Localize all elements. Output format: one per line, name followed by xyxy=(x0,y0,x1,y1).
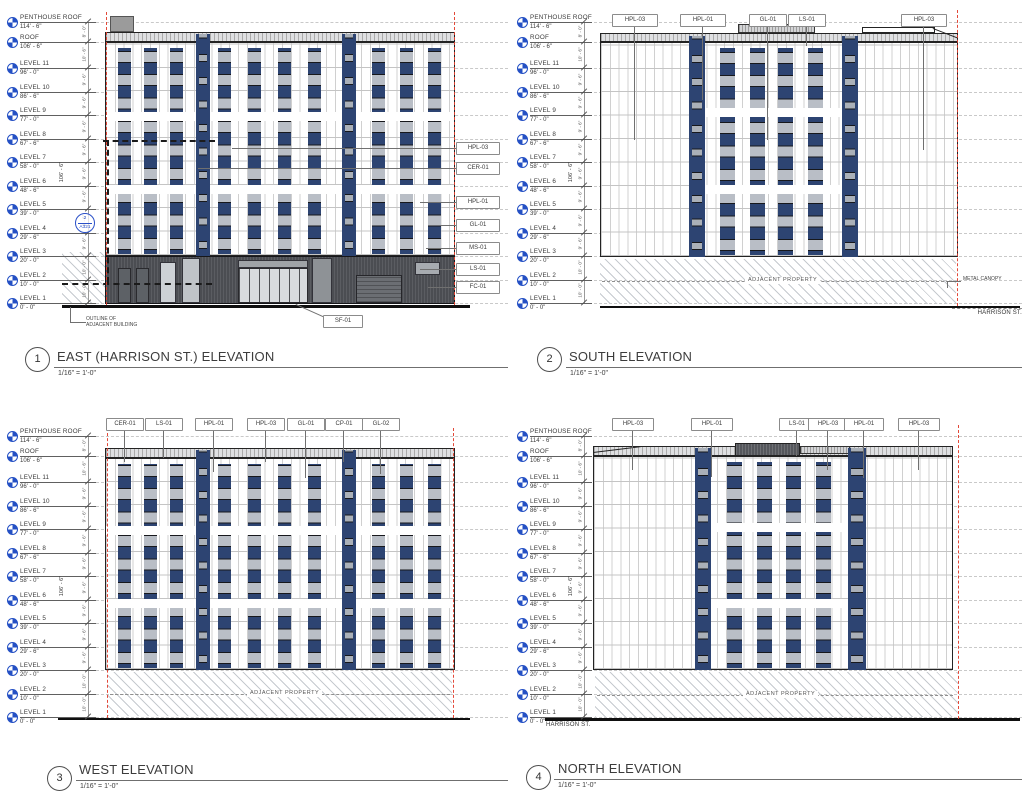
material-tag: HPL-03 xyxy=(612,14,658,27)
facade xyxy=(593,456,953,670)
property-line-red xyxy=(107,428,108,718)
property-label: ADJACENT PROPERTY xyxy=(743,691,818,698)
datum-icon xyxy=(7,618,18,629)
base-detail xyxy=(136,268,149,303)
datum-icon xyxy=(7,431,18,442)
material-tag: HPL-03 xyxy=(898,418,940,431)
window-column xyxy=(400,464,413,668)
window-column xyxy=(400,48,413,254)
window-column xyxy=(170,48,183,254)
datum-icon xyxy=(517,689,528,700)
window-column xyxy=(727,462,742,668)
floor-dimension: 9' - 6" xyxy=(82,234,87,254)
floor-dimension: 10' - 0" xyxy=(82,281,87,301)
facade-band xyxy=(106,112,454,121)
parapet-band xyxy=(600,33,958,42)
material-tag: HPL-01 xyxy=(844,418,884,431)
material-tag: GL-01 xyxy=(749,14,787,27)
floor-dimension: 9' - 6" xyxy=(578,577,583,597)
level-elevation: 58' - 0" xyxy=(530,577,592,585)
material-tag: HPL-01 xyxy=(456,196,500,209)
datum-icon xyxy=(517,712,528,723)
title-rule xyxy=(54,367,508,368)
floor-dimension: 10' - 0" xyxy=(82,257,87,277)
level-elevation: 20' - 0" xyxy=(530,671,592,679)
overall-dimension: 106' - 6" xyxy=(568,149,574,195)
floor-dimension: 9' - 6" xyxy=(82,483,87,503)
tag-leader xyxy=(232,148,456,149)
material-tag: HPL-01 xyxy=(680,14,726,27)
datum-icon xyxy=(517,477,528,488)
material-tag: LS-01 xyxy=(145,418,183,431)
datum-icon xyxy=(517,157,528,168)
floor-dimension: 8' - 0" xyxy=(578,436,583,456)
pier xyxy=(342,34,356,256)
outline-note: OUTLINE OF ADJACENT BUILDING xyxy=(86,316,176,328)
level-elevation: 58' - 0" xyxy=(530,163,592,171)
view-title: SOUTH ELEVATION xyxy=(569,349,692,364)
floor-dimension: 10' - 0" xyxy=(578,257,583,277)
datum-icon xyxy=(517,665,528,676)
floor-dimension: 9' - 6" xyxy=(578,483,583,503)
window-column xyxy=(278,464,291,668)
level-elevation: 77' - 0" xyxy=(530,530,592,538)
level-elevation: 96' - 0" xyxy=(530,69,592,77)
floor-dimension: 9' - 6" xyxy=(578,140,583,160)
datum-icon xyxy=(517,251,528,262)
tag-leader xyxy=(796,431,797,456)
level-elevation: 48' - 6" xyxy=(530,187,592,195)
level-elevation: 77' - 0" xyxy=(530,116,592,124)
level-elevation: 48' - 6" xyxy=(530,601,592,609)
parapet-band xyxy=(105,32,455,42)
window-column xyxy=(248,48,261,254)
view-scale: 1/16" = 1'-0" xyxy=(570,370,608,377)
window-column xyxy=(144,464,157,668)
floor-dimension: 9' - 6" xyxy=(578,210,583,230)
datum-icon xyxy=(7,204,18,215)
pier xyxy=(842,36,858,257)
property-label: ADJACENT PROPERTY xyxy=(745,277,820,284)
window-column xyxy=(118,48,131,254)
overall-dimension: 106' - 6" xyxy=(59,563,65,609)
datum-icon xyxy=(7,251,18,262)
tag-leader xyxy=(711,431,712,477)
tag-leader xyxy=(163,431,164,458)
floor-dimension: 9' - 6" xyxy=(578,163,583,183)
window-column xyxy=(778,48,793,255)
material-tag: LS-01 xyxy=(456,263,500,276)
window-column xyxy=(808,48,823,255)
pier xyxy=(848,448,866,670)
tag-leader xyxy=(124,431,125,462)
base-detail xyxy=(182,258,200,303)
datum-icon xyxy=(517,63,528,74)
view-title: WEST ELEVATION xyxy=(79,762,194,777)
datum-icon xyxy=(7,501,18,512)
datum-icon xyxy=(7,298,18,309)
datum-icon xyxy=(7,451,18,462)
floor-dimension: 9' - 6" xyxy=(578,187,583,207)
base-detail xyxy=(312,258,332,303)
datum-icon xyxy=(517,618,528,629)
material-tag: HPL-03 xyxy=(247,418,285,431)
datum-icon xyxy=(7,712,18,723)
window-column xyxy=(786,462,801,668)
view-title: EAST (HARRISON ST.) ELEVATION xyxy=(57,349,274,364)
material-tag: SF-01 xyxy=(323,315,363,328)
tag-leader xyxy=(767,27,768,140)
window-column xyxy=(757,462,772,668)
floor-dimension: 10' - 6" xyxy=(82,459,87,479)
datum-icon xyxy=(7,571,18,582)
tag-leader xyxy=(863,431,864,478)
tag-leader xyxy=(213,431,214,472)
overall-dimension: 106' - 6" xyxy=(568,563,574,609)
tag-leader xyxy=(634,27,635,140)
datum-icon xyxy=(7,157,18,168)
adjacent-outline-dash xyxy=(103,140,215,142)
level-elevation: 86' - 6" xyxy=(530,507,592,515)
datum-icon xyxy=(517,134,528,145)
property-line-red xyxy=(453,428,454,718)
tag-leader xyxy=(198,168,456,169)
floor-dimension: 9' - 6" xyxy=(82,93,87,113)
datum-icon xyxy=(517,548,528,559)
floor-dimension: 10' - 0" xyxy=(82,695,87,715)
view-scale: 1/16" = 1'-0" xyxy=(558,782,596,789)
title-rule xyxy=(76,780,508,781)
facade-band xyxy=(106,599,454,608)
floor-dimension: 8' - 0" xyxy=(82,436,87,456)
street-line xyxy=(952,308,1022,309)
floor-dimension: 9' - 6" xyxy=(82,530,87,550)
datum-icon xyxy=(517,110,528,121)
material-tag: CP-01 xyxy=(325,418,363,431)
ground-line xyxy=(62,305,470,308)
elevation-sheet: HPL-03 CER-01 HPL-01 GL-01 MS-01 LS-01 F… xyxy=(0,0,1024,801)
level-elevation: 106' - 6" xyxy=(530,457,592,465)
window-column xyxy=(218,48,231,254)
detail-sheet: A321 xyxy=(76,224,94,232)
view-number: 2 xyxy=(537,347,562,372)
ground-line xyxy=(545,718,1020,721)
street-label: HARRISON ST. xyxy=(546,722,598,728)
base-detail xyxy=(238,268,308,303)
window-column xyxy=(118,464,131,668)
base-detail xyxy=(110,16,134,32)
floor-dimension: 9' - 6" xyxy=(578,601,583,621)
datum-icon xyxy=(7,37,18,48)
level-elevation: 10' - 0" xyxy=(530,281,592,289)
datum-icon xyxy=(517,431,528,442)
floor-dimension: 9' - 6" xyxy=(578,530,583,550)
datum-icon xyxy=(7,689,18,700)
material-tag: GL-01 xyxy=(456,219,500,232)
floor-dimension: 9' - 6" xyxy=(82,187,87,207)
pier xyxy=(695,448,711,670)
datum-icon xyxy=(517,595,528,606)
tag-leader xyxy=(428,287,456,288)
view-number: 3 xyxy=(47,766,72,791)
datum-icon xyxy=(517,37,528,48)
floor-dimension: 9' - 6" xyxy=(82,69,87,89)
base-detail xyxy=(118,268,131,303)
level-elevation: 29' - 6" xyxy=(530,648,592,656)
material-tag: HPL-01 xyxy=(691,418,733,431)
level-line xyxy=(96,670,508,671)
datum-icon xyxy=(7,110,18,121)
floor-dimension: 10' - 0" xyxy=(578,281,583,301)
level-elevation: 29' - 6" xyxy=(530,234,592,242)
base-detail xyxy=(356,275,402,303)
floor-dimension: 8' - 0" xyxy=(578,22,583,42)
level-elevation: 10' - 0" xyxy=(530,695,592,703)
window-column xyxy=(816,462,831,668)
material-tag: GL-01 xyxy=(287,418,325,431)
datum-icon xyxy=(7,595,18,606)
canopy-note: METAL CANOPY xyxy=(963,276,1021,282)
window-column xyxy=(218,464,231,668)
note-leader xyxy=(70,307,71,323)
material-tag: GL-02 xyxy=(362,418,400,431)
window-column xyxy=(720,48,735,255)
level-elevation: 114' - 6" xyxy=(530,23,592,31)
pier xyxy=(196,34,210,256)
roof-equipment xyxy=(735,443,800,456)
floor-dimension: 10' - 6" xyxy=(578,459,583,479)
pier xyxy=(342,450,356,670)
facade-band xyxy=(106,185,454,194)
floor-dimension: 9' - 6" xyxy=(82,577,87,597)
property-label: ADJACENT PROPERTY xyxy=(247,690,322,697)
window-column xyxy=(372,464,385,668)
floor-dimension: 10' - 0" xyxy=(82,671,87,691)
window-column xyxy=(428,48,441,254)
level-elevation: 114' - 6" xyxy=(530,437,592,445)
window-column xyxy=(144,48,157,254)
datum-icon xyxy=(7,134,18,145)
floor-dimension: 10' - 6" xyxy=(82,45,87,65)
datum-icon xyxy=(517,181,528,192)
title-rule xyxy=(566,367,1022,368)
window-column xyxy=(278,48,291,254)
facade-band xyxy=(106,526,454,535)
datum-icon xyxy=(7,87,18,98)
datum-icon xyxy=(7,275,18,286)
datum-icon xyxy=(7,524,18,535)
level-elevation: 39' - 0" xyxy=(530,210,592,218)
floor-dimension: 9' - 6" xyxy=(578,648,583,668)
level-elevation: 96' - 0" xyxy=(530,483,592,491)
tag-leader xyxy=(426,248,456,249)
title-rule xyxy=(554,779,1022,780)
datum-icon xyxy=(517,298,528,309)
floor-dimension: 9' - 6" xyxy=(82,601,87,621)
window-column xyxy=(372,48,385,254)
datum-icon xyxy=(517,204,528,215)
material-tag: LS-01 xyxy=(788,14,826,27)
level-elevation: 86' - 6" xyxy=(530,93,592,101)
floor-dimension: 9' - 6" xyxy=(578,116,583,136)
parapet-band xyxy=(105,448,455,458)
view-title: NORTH ELEVATION xyxy=(558,761,682,776)
datum-icon xyxy=(7,665,18,676)
floor-dimension: 9' - 6" xyxy=(578,93,583,113)
material-tag: HPL-03 xyxy=(808,418,848,431)
material-tag: FC-01 xyxy=(456,281,500,294)
window-column xyxy=(308,464,321,668)
floor-dimension: 9' - 6" xyxy=(578,69,583,89)
datum-icon xyxy=(517,451,528,462)
parapet-step xyxy=(862,27,935,33)
property-line-red xyxy=(957,10,958,306)
property-line-red xyxy=(454,12,455,305)
view-number: 1 xyxy=(25,347,50,372)
tag-leader xyxy=(806,27,807,46)
floor-dimension: 10' - 0" xyxy=(578,695,583,715)
datum-icon xyxy=(517,524,528,535)
pier xyxy=(196,450,210,670)
view-number: 4 xyxy=(526,765,551,790)
floor-dimension: 9' - 6" xyxy=(578,234,583,254)
base-detail xyxy=(238,260,308,268)
level-elevation: 20' - 0" xyxy=(530,257,592,265)
note-leader xyxy=(70,322,86,323)
level-line xyxy=(96,22,508,23)
material-tag: HPL-01 xyxy=(195,418,233,431)
material-tag: HPL-03 xyxy=(901,14,947,27)
material-tag: CER-01 xyxy=(106,418,144,431)
tag-leader xyxy=(827,431,828,470)
datum-icon xyxy=(517,228,528,239)
level-elevation: 67' - 6" xyxy=(530,554,592,562)
datum-icon xyxy=(517,642,528,653)
adjacent-outline-dash xyxy=(107,140,109,283)
facade-band xyxy=(711,523,848,532)
datum-icon xyxy=(517,571,528,582)
window-column xyxy=(170,464,183,668)
tag-leader xyxy=(918,431,919,470)
street-label: HARRISON ST. xyxy=(958,310,1022,316)
level-line xyxy=(96,436,508,437)
tag-leader xyxy=(923,27,924,150)
tag-leader xyxy=(632,431,633,470)
floor-dimension: 10' - 6" xyxy=(578,45,583,65)
datum-icon xyxy=(7,181,18,192)
property-line-red xyxy=(106,12,107,305)
facade-band xyxy=(705,108,842,117)
tag-leader xyxy=(305,431,306,478)
datum-icon xyxy=(517,17,528,28)
floor-dimension: 9' - 6" xyxy=(578,554,583,574)
datum-icon xyxy=(7,477,18,488)
window-column xyxy=(248,464,261,668)
datum-icon xyxy=(7,228,18,239)
floor-dimension: 9' - 6" xyxy=(82,624,87,644)
roof-equipment xyxy=(800,446,850,454)
level-elevation: 106' - 6" xyxy=(530,43,592,51)
detail-number: 2 xyxy=(78,214,92,224)
level-elevation: 67' - 6" xyxy=(530,140,592,148)
datum-icon xyxy=(517,87,528,98)
facade-band xyxy=(711,599,848,608)
detail-callout: 2 A321 xyxy=(75,213,95,233)
overall-dimension: 106' - 6" xyxy=(59,149,65,195)
datum-icon xyxy=(7,17,18,28)
datum-icon xyxy=(7,642,18,653)
tag-leader xyxy=(343,431,344,462)
tag-leader xyxy=(702,27,703,100)
floor-dimension: 9' - 6" xyxy=(578,624,583,644)
datum-icon xyxy=(7,548,18,559)
window-column xyxy=(428,464,441,668)
level-elevation: 39' - 0" xyxy=(530,624,592,632)
window-column xyxy=(308,48,321,254)
floor-dimension: 9' - 6" xyxy=(82,163,87,183)
datum-icon xyxy=(517,275,528,286)
ground-line xyxy=(58,718,470,721)
tag-leader xyxy=(265,431,266,462)
view-scale: 1/16" = 1'-0" xyxy=(80,783,118,790)
facade-band xyxy=(705,185,842,194)
window-column xyxy=(750,48,765,255)
floor-dimension: 10' - 0" xyxy=(578,671,583,691)
tag-leader xyxy=(380,431,381,474)
note-leader xyxy=(947,281,961,282)
floor-dimension: 9' - 6" xyxy=(82,116,87,136)
level-elevation: 0' - 0" xyxy=(530,304,592,312)
material-tag: MS-01 xyxy=(456,242,500,255)
note-leader xyxy=(947,281,948,288)
floor-dimension: 9' - 6" xyxy=(82,140,87,160)
floor-dimension: 9' - 6" xyxy=(82,507,87,527)
tag-leader xyxy=(420,202,456,203)
tag-leader xyxy=(440,225,456,226)
datum-icon xyxy=(7,63,18,74)
tag-leader xyxy=(420,269,456,270)
datum-icon xyxy=(517,501,528,512)
material-tag: CER-01 xyxy=(456,162,500,175)
material-tag: HPL-03 xyxy=(612,418,654,431)
floor-dimension: 9' - 6" xyxy=(578,507,583,527)
view-scale: 1/16" = 1'-0" xyxy=(58,370,96,377)
material-tag: HPL-03 xyxy=(456,142,500,155)
floor-dimension: 8' - 0" xyxy=(82,22,87,42)
floor-dimension: 9' - 6" xyxy=(82,648,87,668)
property-line-red xyxy=(958,425,959,719)
floor-dimension: 9' - 6" xyxy=(82,554,87,574)
